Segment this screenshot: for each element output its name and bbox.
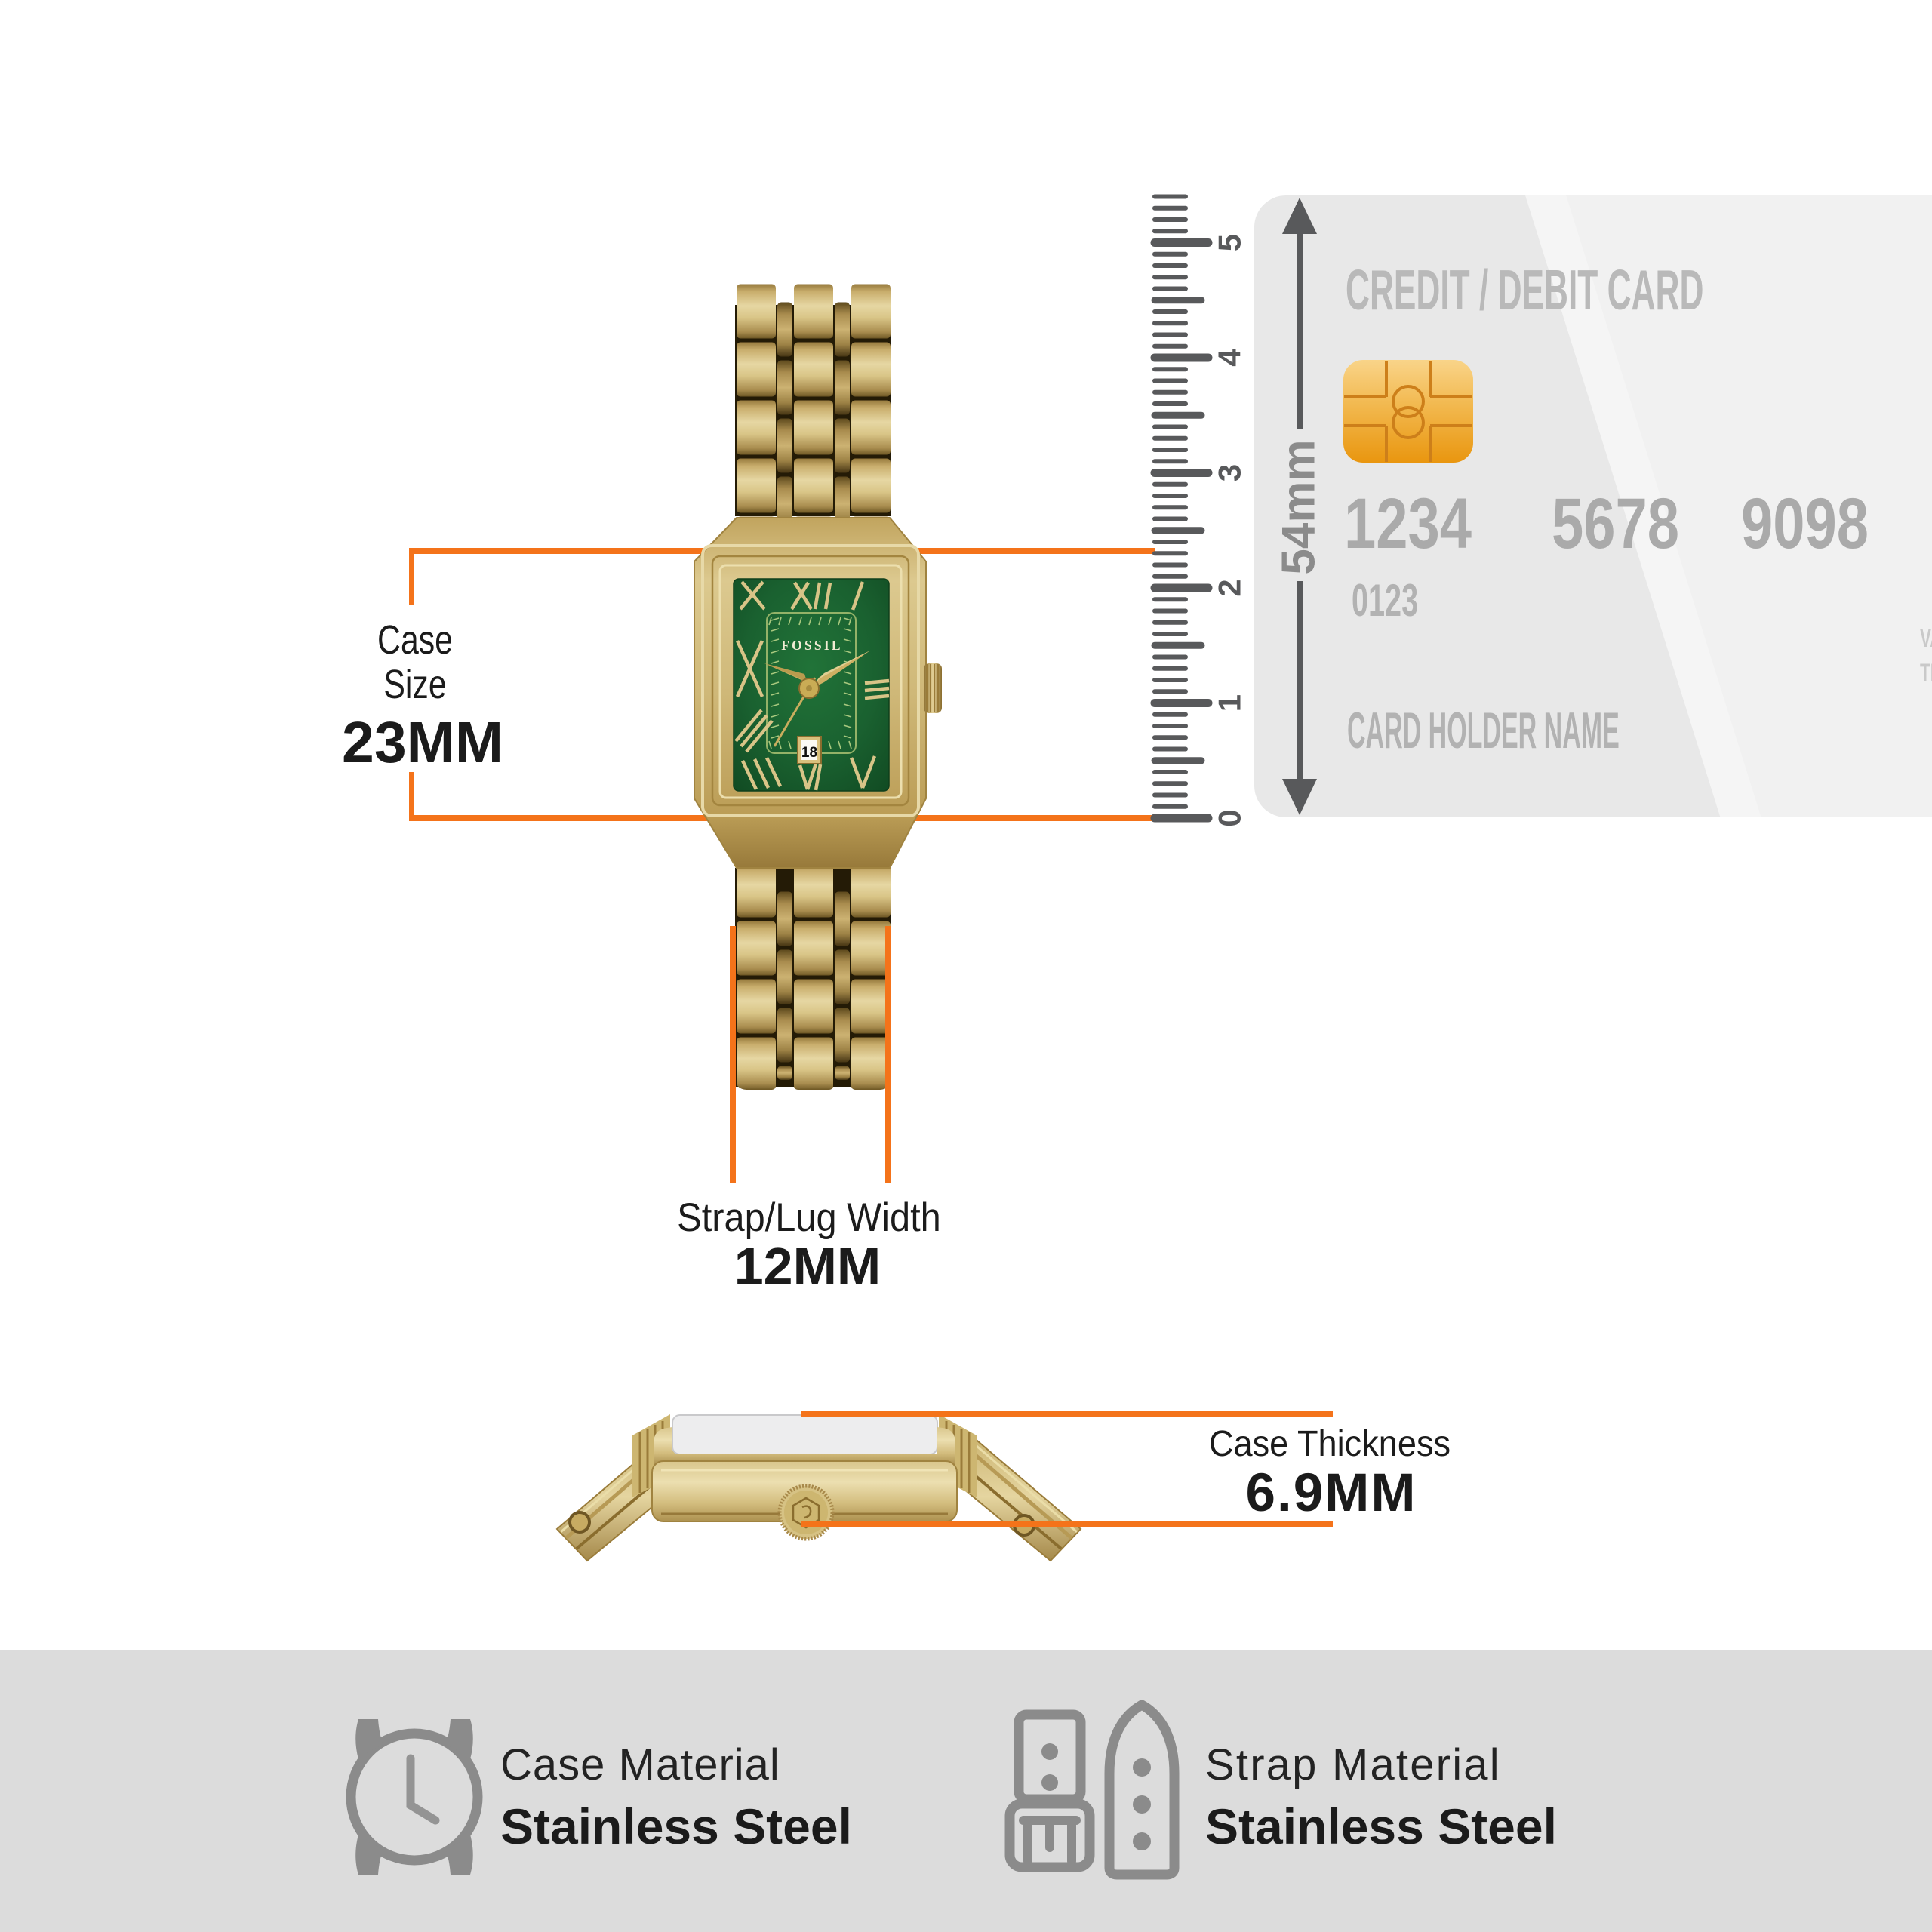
svg-text:3: 3: [1212, 464, 1247, 481]
svg-text:54mm: 54mm: [1273, 439, 1325, 574]
svg-text:18: 18: [801, 745, 817, 761]
svg-text:5: 5: [1212, 234, 1247, 251]
svg-text:0: 0: [1212, 809, 1247, 826]
svg-text:FOSSIL: FOSSIL: [781, 638, 842, 653]
svg-text:4: 4: [1212, 349, 1247, 367]
svg-text:1: 1: [1212, 694, 1247, 712]
svg-text:2: 2: [1212, 579, 1247, 596]
